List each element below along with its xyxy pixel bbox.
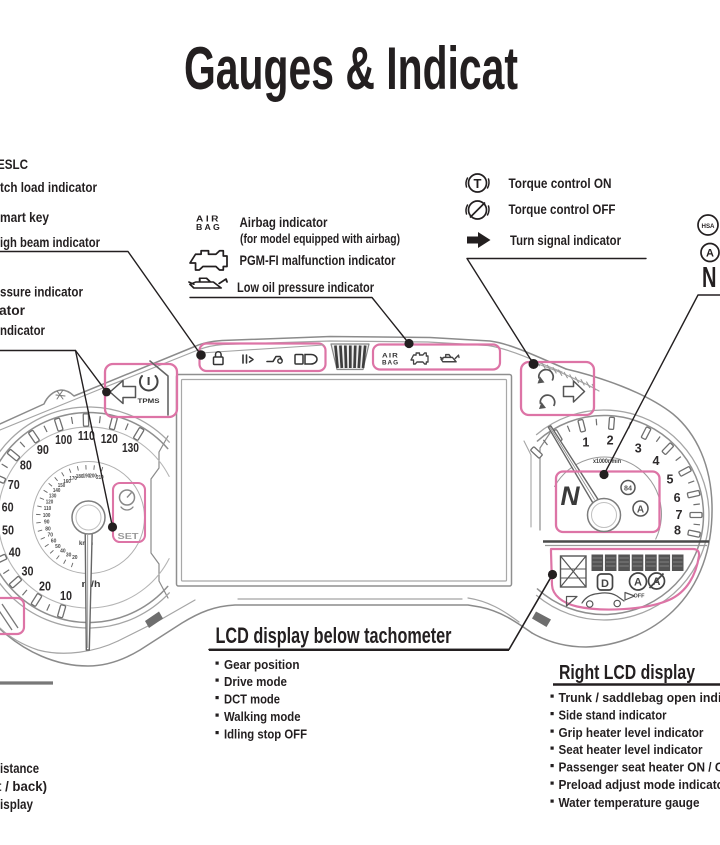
svg-text:Grip heater level indicator: Grip heater level indicator <box>559 726 704 740</box>
svg-text:istance: istance <box>0 760 39 776</box>
svg-text:ator: ator <box>0 302 26 318</box>
svg-text:DCT mode: DCT mode <box>224 693 280 707</box>
svg-text:Torque control OFF: Torque control OFF <box>509 201 616 217</box>
svg-text:Side stand indicator: Side stand indicator <box>559 709 667 723</box>
svg-text:A: A <box>637 505 644 516</box>
svg-text:A: A <box>634 577 642 589</box>
svg-text:Trunk / saddlebag open indicat: Trunk / saddlebag open indicator <box>559 691 720 705</box>
svg-text:ndicator: ndicator <box>0 322 45 338</box>
svg-text:ESLC: ESLC <box>0 156 28 172</box>
svg-text:50: 50 <box>2 523 14 537</box>
svg-text:110: 110 <box>44 506 52 512</box>
svg-text:Preload adjust mode indicator: Preload adjust mode indicator <box>559 778 720 792</box>
svg-text:x1000r/min: x1000r/min <box>593 458 621 465</box>
svg-text:7: 7 <box>676 508 683 522</box>
svg-text:20: 20 <box>72 555 78 561</box>
svg-text:BAG: BAG <box>196 223 222 232</box>
svg-text:tch load indicator: tch load indicator <box>0 179 97 195</box>
svg-text:5: 5 <box>667 473 674 487</box>
svg-text:40: 40 <box>60 549 66 555</box>
svg-text:N: N <box>702 262 717 294</box>
svg-text:6: 6 <box>674 491 681 505</box>
svg-text:SET: SET <box>118 531 140 541</box>
svg-text:50: 50 <box>55 544 61 550</box>
svg-text:40: 40 <box>9 545 21 559</box>
svg-text:Gauges & Indicat: Gauges & Indicat <box>184 35 518 102</box>
svg-text:Walking mode: Walking mode <box>224 710 301 724</box>
svg-text:80: 80 <box>20 459 32 473</box>
svg-text:Passenger seat heater ON / OFF: Passenger seat heater ON / OFF <box>559 761 720 775</box>
svg-text:120: 120 <box>46 500 54 506</box>
svg-text:60: 60 <box>51 539 57 545</box>
svg-text:60: 60 <box>2 500 14 514</box>
svg-text:10: 10 <box>60 589 72 603</box>
svg-text:HSA: HSA <box>702 223 715 230</box>
svg-text:igh beam indicator: igh beam indicator <box>0 234 100 250</box>
svg-text:Torque control ON: Torque control ON <box>509 175 612 191</box>
svg-text:70: 70 <box>48 533 54 539</box>
svg-text:D: D <box>601 578 609 590</box>
svg-text:Drive mode: Drive mode <box>224 675 287 689</box>
svg-text:T: T <box>474 176 482 191</box>
svg-text:130: 130 <box>122 441 139 455</box>
svg-text:100: 100 <box>55 433 72 447</box>
svg-text:Idling stop OFF: Idling stop OFF <box>224 728 307 742</box>
svg-text:PGM-FI malfunction indicator: PGM-FI malfunction indicator <box>240 252 396 268</box>
svg-text:AIR: AIR <box>382 353 399 360</box>
svg-text:4: 4 <box>653 454 660 468</box>
svg-text:TPMS: TPMS <box>138 398 161 405</box>
svg-text:30: 30 <box>21 565 33 579</box>
svg-text:120: 120 <box>101 432 118 446</box>
svg-text:mart key: mart key <box>0 209 49 225</box>
svg-text:80: 80 <box>45 526 51 532</box>
svg-text:OFF: OFF <box>634 594 645 600</box>
svg-text:2: 2 <box>607 433 614 447</box>
svg-text:90: 90 <box>44 520 50 526</box>
svg-text:1: 1 <box>582 435 589 449</box>
svg-text:30: 30 <box>66 552 72 558</box>
svg-text:Airbag indicator: Airbag indicator <box>240 214 328 230</box>
svg-text:3: 3 <box>635 441 642 455</box>
svg-text:130: 130 <box>49 493 57 499</box>
svg-text:A: A <box>706 248 714 260</box>
svg-text:Seat heater level indicator: Seat heater level indicator <box>559 743 703 757</box>
svg-text:Gear position: Gear position <box>224 658 300 672</box>
svg-text:84: 84 <box>624 486 632 493</box>
svg-text:Right LCD display: Right LCD display <box>559 662 696 684</box>
svg-text:Water temperature gauge: Water temperature gauge <box>559 796 700 810</box>
svg-text:LCD display below tachometer: LCD display below tachometer <box>216 623 452 648</box>
svg-text:8: 8 <box>674 523 681 537</box>
svg-text:N: N <box>561 481 580 511</box>
svg-text:Turn signal indicator: Turn signal indicator <box>510 232 621 248</box>
svg-text:(for model equipped with airba: (for model equipped with airbag) <box>240 232 400 246</box>
svg-text:Low oil pressure indicator: Low oil pressure indicator <box>237 279 374 295</box>
svg-text:BAG: BAG <box>382 360 399 367</box>
svg-text:ssure indicator: ssure indicator <box>0 284 83 300</box>
svg-text:isplay: isplay <box>0 796 33 812</box>
svg-text:t / back): t / back) <box>0 778 47 794</box>
svg-text:100: 100 <box>43 513 51 519</box>
svg-text:20: 20 <box>39 580 51 594</box>
svg-text:70: 70 <box>8 478 20 492</box>
svg-text:90: 90 <box>37 443 49 457</box>
